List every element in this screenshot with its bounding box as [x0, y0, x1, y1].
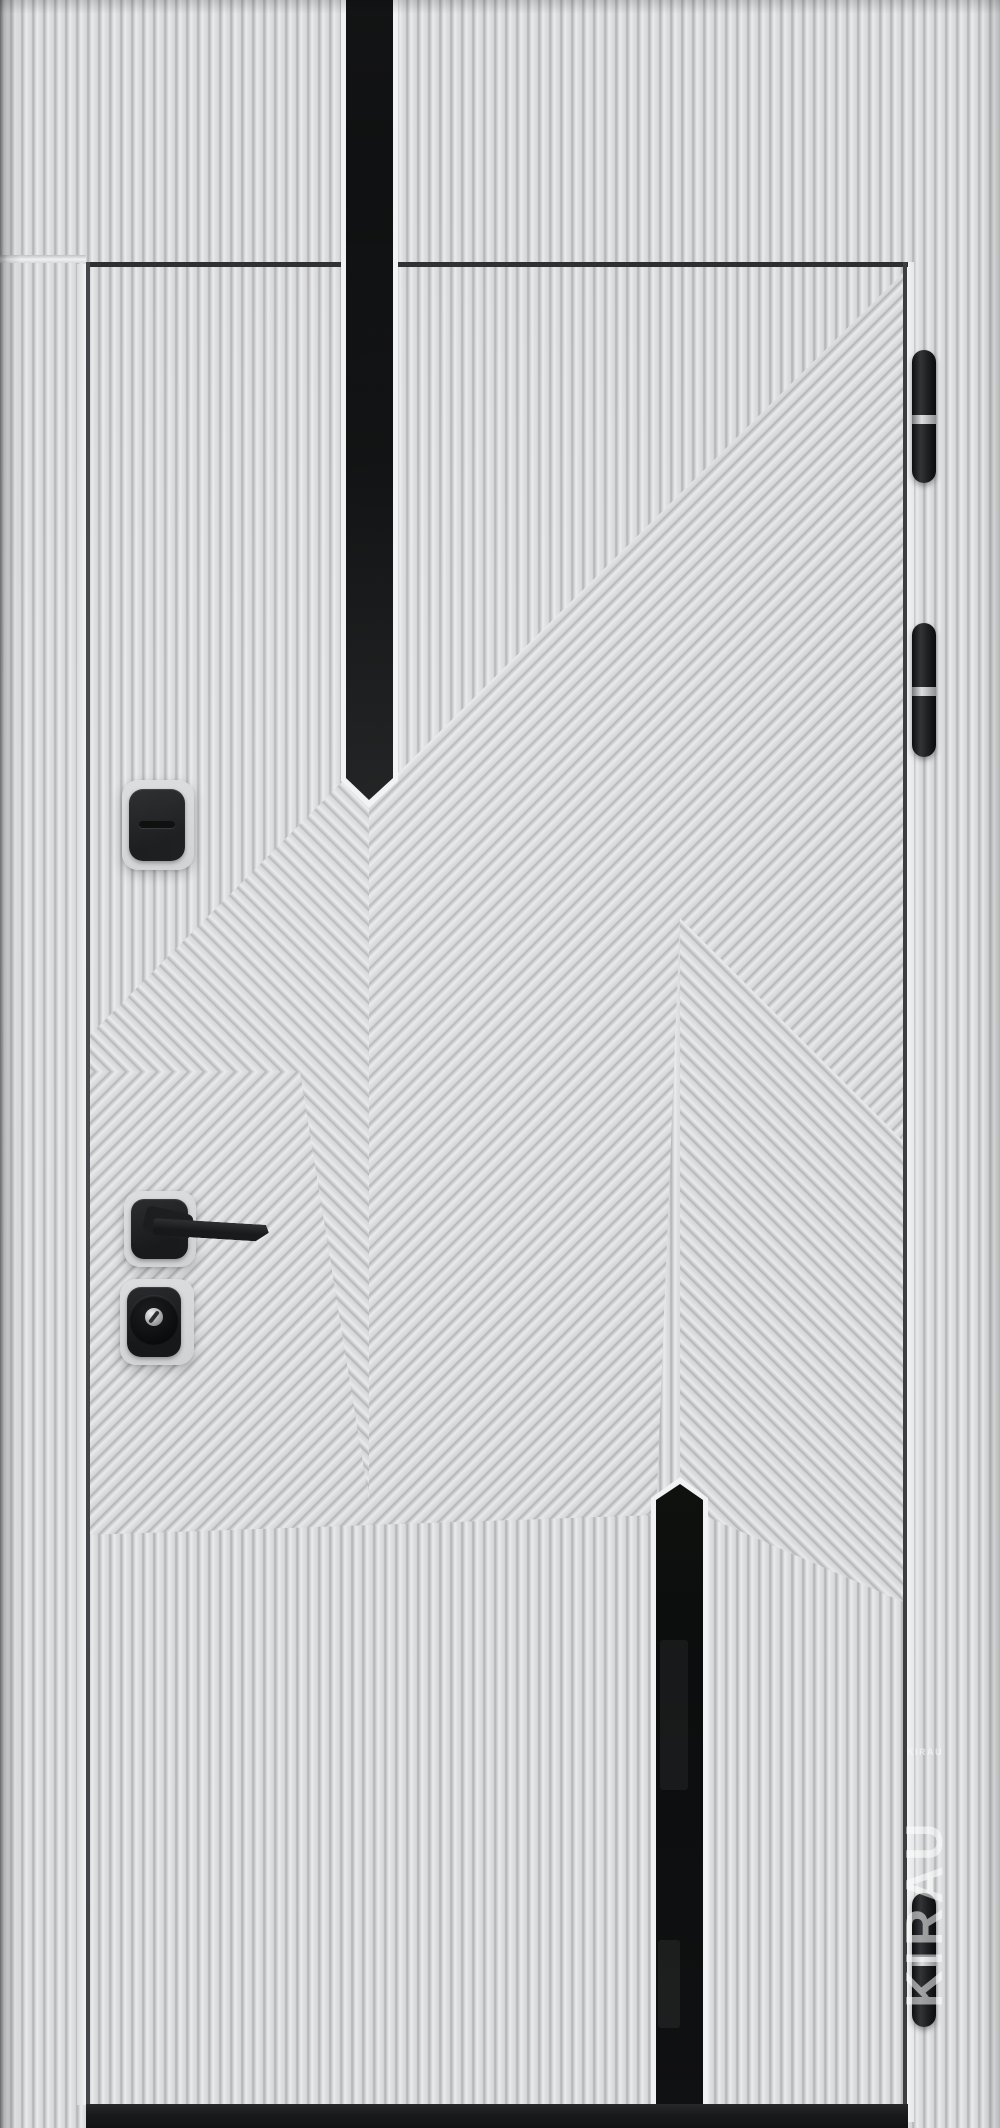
door-product-photo: KIRAU KIRAU: [0, 0, 1000, 2128]
soft-glow: [0, 0, 1000, 2128]
